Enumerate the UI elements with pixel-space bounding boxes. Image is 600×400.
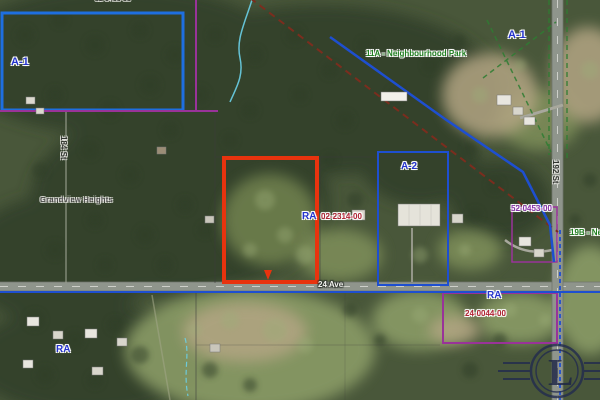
- aerial-map-viewport[interactable]: A-1 02-0450-00 A-1 11A - Neighbourhood P…: [0, 0, 600, 400]
- terrain-imagery: [0, 0, 600, 400]
- aerial-map-canvas[interactable]: [0, 0, 600, 400]
- legal-seal-letter: L: [548, 351, 573, 395]
- greenhouse-complex: [398, 204, 440, 226]
